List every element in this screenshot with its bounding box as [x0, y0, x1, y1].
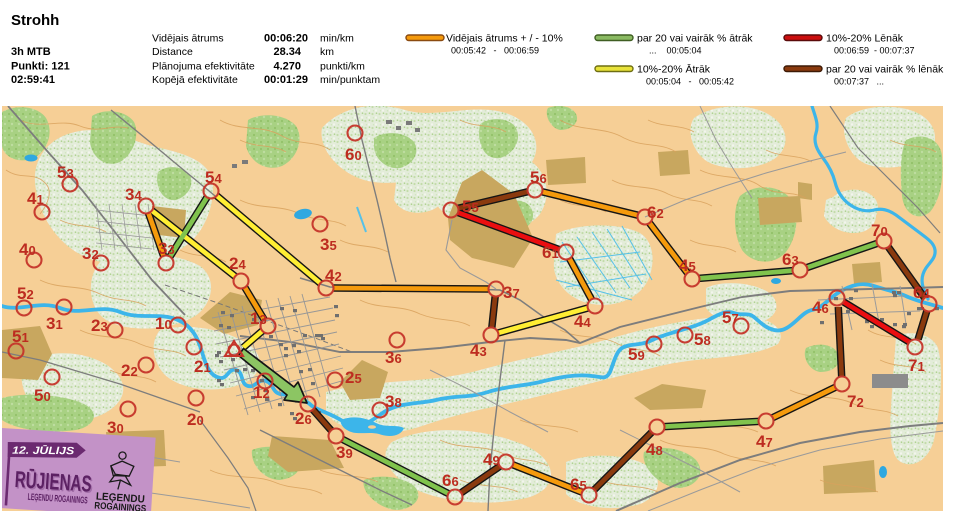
svg-text:25: 25 — [345, 368, 362, 387]
svg-text:10: 10 — [155, 314, 172, 333]
svg-text:45: 45 — [679, 256, 696, 275]
svg-text:38: 38 — [385, 392, 402, 411]
svg-text:Vidējais ātrums + / - 10%: Vidējais ātrums + / - 10% — [446, 33, 563, 45]
svg-text:par 20 vai vairāk % lēnāk: par 20 vai vairāk % lēnāk — [826, 64, 944, 76]
svg-text:44: 44 — [574, 312, 591, 331]
svg-text:35: 35 — [320, 235, 337, 254]
svg-text:RŪJIENAS: RŪJIENAS — [14, 466, 92, 497]
svg-text:4.270: 4.270 — [273, 61, 301, 73]
svg-text:12: 12 — [253, 383, 270, 402]
svg-text:53: 53 — [57, 163, 74, 182]
svg-text:12. JŪLIJS: 12. JŪLIJS — [12, 445, 74, 458]
svg-text:00:06:20: 00:06:20 — [264, 33, 308, 45]
svg-text:... 00:05:04: ... 00:05:04 — [649, 46, 702, 56]
svg-text:41: 41 — [27, 189, 44, 208]
svg-text:42: 42 — [325, 266, 342, 285]
svg-text:24: 24 — [229, 254, 246, 273]
svg-text:28.34: 28.34 — [273, 46, 301, 58]
svg-text:26: 26 — [295, 409, 312, 428]
svg-text:3h MTB: 3h MTB — [11, 46, 51, 58]
svg-text:49: 49 — [483, 450, 500, 469]
svg-text:min/km: min/km — [320, 33, 354, 45]
svg-text:31: 31 — [46, 314, 63, 333]
svg-text:46: 46 — [812, 298, 829, 317]
svg-text:30: 30 — [107, 418, 124, 437]
svg-text:62: 62 — [647, 203, 664, 222]
svg-text:47: 47 — [756, 432, 773, 451]
svg-text:50: 50 — [34, 386, 51, 405]
svg-text:65: 65 — [570, 475, 587, 494]
svg-text:59: 59 — [628, 345, 645, 364]
svg-text:Vidējais ātrums: Vidējais ātrums — [152, 33, 224, 45]
svg-text:02:59:41: 02:59:41 — [11, 74, 55, 86]
svg-text:43: 43 — [470, 341, 487, 360]
svg-text:64: 64 — [913, 283, 930, 302]
svg-text:21: 21 — [194, 357, 211, 376]
svg-text:par 20 vai vairāk % ātrāk: par 20 vai vairāk % ātrāk — [637, 33, 753, 45]
svg-text:Plānojuma efektivitāte: Plānojuma efektivitāte — [152, 61, 255, 73]
svg-text:51: 51 — [12, 327, 29, 346]
svg-text:00:06:59 - 00:07:37: 00:06:59 - 00:07:37 — [834, 46, 915, 56]
svg-text:10%-20% Lēnāk: 10%-20% Lēnāk — [826, 33, 904, 45]
svg-text:52: 52 — [17, 284, 34, 303]
svg-text:70: 70 — [871, 221, 888, 240]
svg-text:60: 60 — [345, 145, 362, 164]
svg-text:32: 32 — [82, 244, 99, 263]
svg-text:54: 54 — [205, 168, 222, 187]
svg-text:33: 33 — [158, 239, 175, 258]
svg-text:58: 58 — [694, 330, 711, 349]
svg-text:00:01:29: 00:01:29 — [264, 74, 308, 86]
svg-text:13: 13 — [250, 309, 267, 328]
svg-text:61: 61 — [542, 243, 559, 262]
svg-text:36: 36 — [385, 348, 402, 367]
svg-text:Kopējā efektivitāte: Kopējā efektivitāte — [152, 74, 238, 86]
svg-text:km: km — [320, 46, 334, 58]
svg-text:00:05:04 - 00:05:42: 00:05:04 - 00:05:42 — [646, 77, 734, 87]
svg-text:37: 37 — [503, 283, 520, 302]
svg-text:20: 20 — [187, 410, 204, 429]
svg-text:min/punktam: min/punktam — [320, 74, 380, 86]
svg-text:23: 23 — [91, 316, 108, 335]
svg-text:10%-20% Ātrāk: 10%-20% Ātrāk — [637, 64, 711, 76]
svg-text:40: 40 — [19, 240, 36, 259]
svg-text:63: 63 — [782, 250, 799, 269]
svg-text:00:07:37 ...: 00:07:37 ... — [834, 77, 884, 87]
svg-text:55: 55 — [462, 197, 479, 216]
svg-text:57: 57 — [722, 308, 739, 327]
svg-text:39: 39 — [336, 443, 353, 462]
svg-text:66: 66 — [442, 471, 459, 490]
svg-text:71: 71 — [908, 356, 925, 375]
svg-text:48: 48 — [646, 440, 663, 459]
svg-text:34: 34 — [125, 185, 142, 204]
svg-text:00:05:42 - 00:06:59: 00:05:42 - 00:06:59 — [451, 46, 539, 56]
svg-text:punkti/km: punkti/km — [320, 61, 365, 73]
svg-text:Strohh: Strohh — [11, 12, 59, 29]
svg-text:Punkti: 121: Punkti: 121 — [11, 61, 70, 73]
svg-text:72: 72 — [847, 392, 864, 411]
svg-text:Distance: Distance — [152, 46, 193, 58]
svg-text:56: 56 — [530, 168, 547, 187]
svg-text:22: 22 — [121, 361, 138, 380]
